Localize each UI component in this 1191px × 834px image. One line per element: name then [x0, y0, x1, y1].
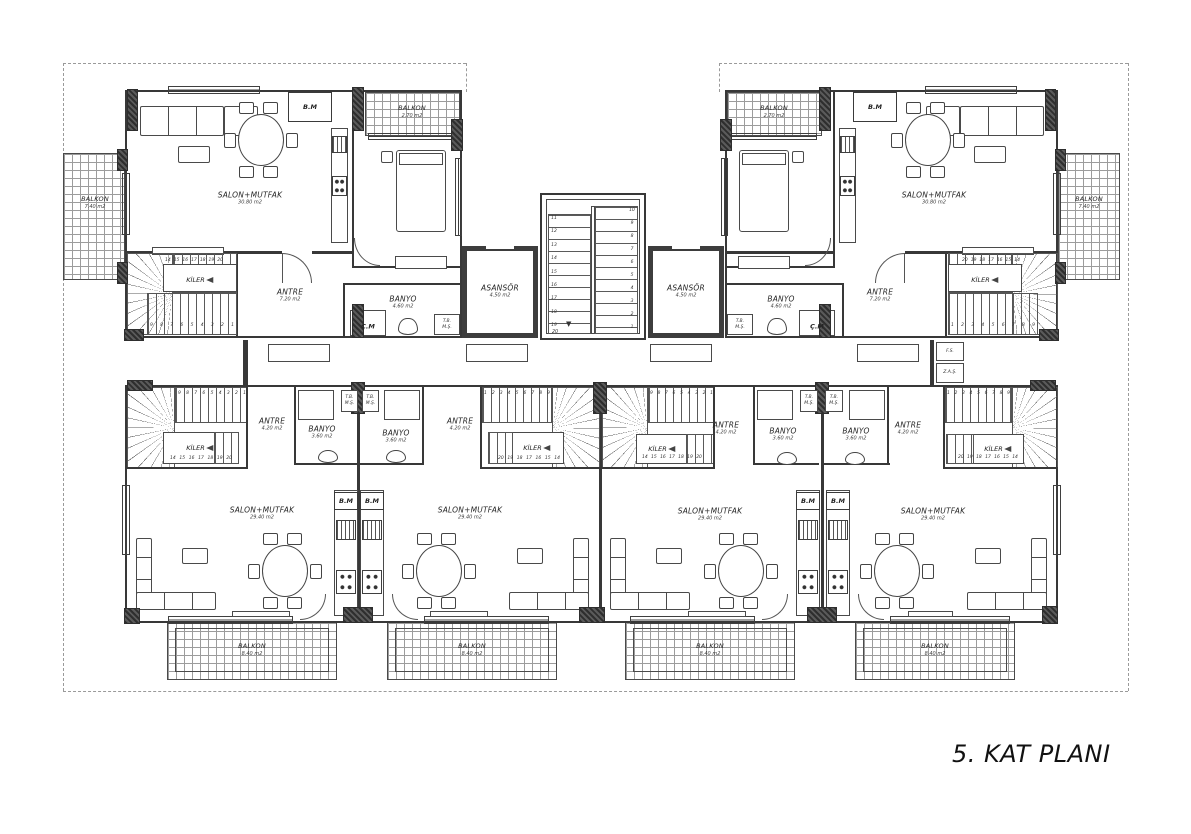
room-area: 3.60 m2 — [308, 434, 335, 440]
stair-numbers: 14151617181920 — [165, 258, 223, 263]
room-area: 30.80 m2 — [902, 200, 967, 206]
kiler-label: KİLER — [648, 445, 675, 453]
room-label-balkon: BALKON 7.40 m2 — [81, 196, 109, 210]
wall-pier — [594, 383, 606, 413]
elevator-door-gap — [486, 244, 514, 249]
room-name: ASANSÖR — [481, 284, 519, 293]
kiler-label: KİLER — [971, 276, 998, 284]
stair-number-last: 20 — [552, 330, 558, 335]
window — [168, 86, 260, 94]
boundary-dashed-top-left — [63, 63, 466, 64]
room-name: BALKON — [921, 643, 949, 651]
room-name: ANTRE — [259, 417, 285, 426]
chair — [875, 597, 890, 609]
sink — [845, 452, 865, 465]
balcony-hatch — [63, 153, 125, 280]
stair-step-number: 17 — [191, 258, 197, 263]
sofa — [136, 592, 216, 610]
stair-step-number: 5 — [977, 391, 980, 396]
room-name: BALKON — [238, 643, 266, 651]
fridge — [798, 520, 818, 540]
dining-table-group — [400, 531, 476, 609]
shaft-box: T.B.M.Ş. — [800, 390, 818, 412]
stair-step-number: 14 — [550, 256, 558, 261]
room-label-salon: SALON+MUTFAK 30.80 m2 — [902, 191, 967, 206]
room-area: 3.60 m2 — [842, 436, 869, 442]
stair-step-number: 18 — [979, 258, 985, 263]
stair-wall — [480, 467, 600, 469]
room-area: 29.40 m2 — [678, 516, 743, 522]
stair-step-number: 6 — [202, 391, 205, 396]
room-area: 8.40 m2 — [696, 651, 724, 657]
stair-step-number: 17 — [985, 455, 991, 460]
kiler-text: KİLER — [971, 276, 989, 284]
stair-step-number: 5 — [628, 273, 636, 278]
stair-step-number: 18 — [517, 456, 523, 461]
stair-numbers: 14151617181920 — [642, 455, 702, 460]
stair-numbers: 987654321 — [650, 391, 713, 396]
stair-numbers: 987654321 — [178, 391, 246, 396]
room-label-balkon: BALKON 8.40 m2 — [458, 643, 486, 657]
sofa — [967, 592, 1047, 610]
stair-step-number: 1 — [951, 323, 954, 328]
room-area: 8.40 m2 — [921, 651, 949, 657]
chair — [743, 597, 758, 609]
shaft-box: T.B.M.Ş. — [434, 314, 460, 335]
stair-step-number: 9 — [1032, 323, 1035, 328]
chair — [766, 564, 778, 579]
chair — [224, 133, 236, 148]
room-name: BALKON — [458, 643, 486, 651]
stair-step-number: 4 — [628, 286, 636, 291]
stair-step-number: 14 — [1012, 455, 1018, 460]
wardrobe — [395, 256, 447, 269]
stair-step-number: 5 — [211, 391, 214, 396]
stair-step-number: 20 — [962, 258, 968, 263]
closet-bm-label: B.M — [801, 497, 815, 505]
chair — [930, 102, 945, 114]
shower — [757, 390, 793, 420]
tv-console — [430, 611, 488, 617]
room-label-salon: SALON+MUTFAK 29.40 m2 — [230, 506, 295, 521]
sink — [386, 450, 406, 463]
room-label-banyo: BANYO 3.60 m2 — [769, 427, 796, 442]
stair-step-number: 8 — [186, 391, 189, 396]
stair-step-number: 14 — [165, 258, 171, 263]
boundary-dashed-notch-left — [466, 63, 467, 92]
stair-step-number: 14 — [554, 456, 560, 461]
room-area: 7.40 m2 — [81, 204, 109, 210]
link-wall — [243, 340, 248, 385]
window — [168, 616, 293, 624]
stair-step-number: 5 — [680, 391, 683, 396]
stair-step-number: 9 — [547, 391, 550, 396]
room-area: 3.60 m2 — [382, 438, 409, 444]
tv-console — [688, 611, 746, 617]
room-name: SALON+MUTFAK — [902, 191, 967, 200]
room-name: SALON+MUTFAK — [901, 507, 966, 516]
room-name: ANTRE — [867, 288, 893, 297]
stair-step-number: 1 — [484, 391, 487, 396]
stair-step-number: 3 — [971, 323, 974, 328]
stair-step-number: 8 — [628, 234, 636, 239]
room-area: 3.60 m2 — [769, 436, 796, 442]
stair-numbers: 123456789 — [951, 323, 1035, 328]
stair-step-number: 17 — [526, 456, 532, 461]
stair-step-number: 3 — [211, 323, 214, 328]
link-wall — [930, 340, 934, 385]
chair — [906, 102, 921, 114]
stair-step-number: 17 — [669, 455, 675, 460]
balcony-hatch — [1058, 153, 1120, 280]
wall-pier — [128, 381, 152, 390]
bath-wall — [422, 387, 424, 465]
cm-label: Ç.M — [361, 313, 375, 332]
stair-step-number: 19 — [967, 455, 973, 460]
room-name: SALON+MUTFAK — [230, 506, 295, 515]
room-label-banyo: BANYO 3.60 m2 — [308, 425, 335, 440]
stair-step-number: 15 — [651, 455, 657, 460]
chair — [263, 102, 278, 114]
stair-step-number: 16 — [182, 258, 188, 263]
shaft-ms: M.Ş. — [442, 325, 452, 331]
stair-step-number: 2 — [955, 391, 958, 396]
wall-pier — [1056, 263, 1065, 283]
toilet — [398, 318, 418, 335]
stair-numbers: 987654321 — [150, 323, 234, 328]
stair-step-number: 16 — [189, 456, 195, 461]
stair-step-number: 9 — [628, 221, 636, 226]
stair-wall — [246, 387, 248, 469]
stair-step-number: 17 — [550, 296, 558, 301]
closet-bm-label: B.M — [303, 103, 317, 111]
stair-step-number: 18 — [200, 258, 206, 263]
bed-pillow — [742, 153, 786, 165]
shaft-ms: M.Ş. — [345, 401, 355, 407]
stair-step-number: 4 — [201, 323, 204, 328]
stair-step-number: 20 — [226, 456, 232, 461]
bedroom-wall — [833, 92, 835, 268]
wall-pier — [344, 608, 372, 622]
stair-step-number: 19 — [687, 455, 693, 460]
chair — [891, 133, 903, 148]
tv-console — [232, 611, 290, 617]
dining-table — [905, 114, 951, 166]
chair — [719, 597, 734, 609]
stair-step-number: 15 — [545, 456, 551, 461]
window — [630, 616, 755, 624]
room-area: 7.20 m2 — [867, 297, 893, 303]
chair — [953, 133, 965, 148]
stair-step-number: 15 — [550, 270, 558, 275]
room-label-asansor: ASANSÖR 4.50 m2 — [481, 284, 519, 299]
wall-pier — [721, 120, 731, 150]
wall-pier — [1031, 381, 1055, 390]
bed-pillow — [399, 153, 443, 165]
chair — [899, 597, 914, 609]
stair-step-number: 3 — [500, 391, 503, 396]
stair-step-number: 20 — [958, 455, 964, 460]
chair — [263, 166, 278, 178]
dining-table — [262, 545, 308, 597]
stair-wall — [127, 467, 248, 469]
planter-box — [650, 344, 712, 362]
stair-step-number: 19 — [971, 258, 977, 263]
room-label-banyo: BANYO 3.60 m2 — [842, 427, 869, 442]
stove — [332, 176, 347, 196]
stair-step-number: 16 — [550, 283, 558, 288]
stair-step-number: 16 — [994, 455, 1000, 460]
chair — [906, 166, 921, 178]
stair-step-number: 19 — [550, 323, 558, 328]
stair-step-number: 4 — [508, 391, 511, 396]
window — [1053, 485, 1061, 555]
room-label-salon: SALON+MUTFAK 30.80 m2 — [218, 191, 283, 206]
room-area: 2.70 m2 — [398, 113, 426, 119]
stair-step-number: 8 — [1000, 391, 1003, 396]
room-name: BANYO — [767, 295, 794, 304]
room-label-antre: ANTRE 4.20 m2 — [259, 417, 285, 432]
room-label-banyo: BANYO 4.60 m2 — [767, 295, 794, 310]
chair — [441, 597, 456, 609]
dining-table-group — [702, 531, 778, 609]
shaft-box: T.B.M.Ş. — [825, 390, 843, 412]
closet-bm-box: B.M — [334, 492, 358, 510]
bath-wall — [294, 387, 296, 465]
door-leaf — [904, 253, 905, 283]
salon-wall — [312, 251, 352, 254]
stair-step-number: 17 — [988, 258, 994, 263]
chair — [417, 533, 432, 545]
room-area: 7.40 m2 — [1075, 204, 1103, 210]
room-area: 4.20 m2 — [259, 426, 285, 432]
stair-step-number: 15 — [174, 258, 180, 263]
window — [122, 485, 130, 555]
stair-step-number: 4 — [981, 323, 984, 328]
stair-step-number: 4 — [688, 391, 691, 396]
room-name: ANTRE — [447, 417, 473, 426]
dining-table — [718, 545, 764, 597]
stair-step-number: 18 — [976, 455, 982, 460]
chair — [310, 564, 322, 579]
stair-wall — [602, 467, 715, 469]
stair-step-number: 15 — [179, 456, 185, 461]
chair — [464, 564, 476, 579]
stair-wall — [480, 387, 482, 469]
wall-pier — [1046, 90, 1055, 130]
stove — [362, 570, 382, 594]
chair — [930, 166, 945, 178]
boundary-dashed-bottom — [63, 691, 1128, 692]
stove — [336, 570, 356, 594]
stair-step-number: 6 — [673, 391, 676, 396]
room-label-antre: ANTRE 7.20 m2 — [277, 288, 303, 303]
room-area: 4.60 m2 — [389, 304, 416, 310]
stair-step-number: 6 — [180, 323, 183, 328]
wall-pier — [353, 88, 363, 130]
room-name: SALON+MUTFAK — [678, 507, 743, 516]
stair-step-number: 1 — [710, 391, 713, 396]
stair-step-number: 9 — [650, 391, 653, 396]
chair — [263, 533, 278, 545]
kiler-label: KİLER — [984, 445, 1011, 453]
planter-box — [466, 344, 528, 362]
room-area: 29.40 m2 — [901, 516, 966, 522]
bath-wall — [725, 283, 844, 285]
kiler-text: KİLER — [186, 276, 204, 284]
zas-text: Z.A.Ş. — [943, 370, 956, 376]
room-name: BALKON — [398, 105, 426, 113]
coffee-table — [517, 548, 543, 564]
stair-step-number: 8 — [539, 391, 542, 396]
wall-pier — [128, 90, 137, 130]
door-leaf — [282, 253, 283, 283]
stair-step-number: 5 — [516, 391, 519, 396]
stair-step-number: 4 — [970, 391, 973, 396]
chair — [743, 533, 758, 545]
stair-step-number: 2 — [492, 391, 495, 396]
dining-table — [874, 545, 920, 597]
chair — [263, 597, 278, 609]
room-area: 4.50 m2 — [481, 293, 519, 299]
stair-numbers-left: 111213141516171819 — [550, 216, 558, 328]
kiler-label: KİLER — [523, 444, 550, 452]
room-label-asansor: ASANSÖR 4.50 m2 — [667, 284, 705, 299]
room-name: BANYO — [389, 295, 416, 304]
stair-numbers: 20191817161514 — [958, 455, 1018, 460]
room-label-balkon: BALKON 8.40 m2 — [696, 643, 724, 657]
fridge — [840, 136, 855, 153]
stair-step-number: 14 — [1014, 258, 1020, 263]
room-label-antre: ANTRE 7.20 m2 — [867, 288, 893, 303]
boundary-dashed-notch-right — [719, 63, 720, 92]
stair-step-number: 9 — [178, 391, 181, 396]
window — [728, 133, 817, 140]
bath-wall — [294, 463, 358, 465]
room-area: 4.20 m2 — [447, 426, 473, 432]
room-name: SALON+MUTFAK — [438, 506, 503, 515]
stair-step-number: 5 — [992, 323, 995, 328]
coffee-table — [974, 146, 1006, 163]
stair-numbers: 20191817161514 — [498, 456, 560, 461]
shower — [849, 390, 885, 420]
cm-text: Ç.M — [361, 322, 375, 330]
stair-step-number: 15 — [1003, 455, 1009, 460]
stair-step-number: 2 — [703, 391, 706, 396]
chair — [248, 564, 260, 579]
room-area: 4.60 m2 — [767, 304, 794, 310]
stair-step-number: 2 — [221, 323, 224, 328]
closet-bm-box: B.M — [288, 92, 332, 122]
wardrobe — [738, 256, 790, 269]
chair — [286, 133, 298, 148]
shaft-box: T.B.M.Ş. — [362, 390, 379, 412]
bath-wall — [842, 283, 844, 338]
chair — [719, 533, 734, 545]
stair-step-number: 6 — [628, 260, 636, 265]
room-name: BANYO — [382, 429, 409, 438]
dining-table-group — [246, 531, 322, 609]
stair-step-number: 11 — [550, 216, 558, 221]
stair-step-number: 16 — [997, 258, 1003, 263]
room-name: BANYO — [769, 427, 796, 436]
bath-wall — [343, 283, 345, 338]
stair-flight — [147, 293, 237, 335]
stair-step-number: 14 — [642, 455, 648, 460]
stair-step-number: 18 — [550, 310, 558, 315]
stair-step-number: 3 — [695, 391, 698, 396]
dining-table-group — [222, 100, 298, 178]
dining-table — [238, 114, 284, 166]
kiler-text: KİLER — [984, 445, 1002, 453]
shower — [384, 390, 420, 420]
room-label-salon: SALON+MUTFAK 29.40 m2 — [438, 506, 503, 521]
window — [455, 158, 462, 236]
stair-numbers: 123456789 — [947, 391, 1010, 396]
toilet — [767, 318, 787, 335]
stair-step-number: 20 — [217, 258, 223, 263]
chair — [875, 533, 890, 545]
stair-numbers: 123456789 — [484, 391, 550, 396]
stair-step-number: 19 — [209, 258, 215, 263]
stair-step-number: 1 — [628, 325, 636, 330]
stair-flight — [948, 293, 1038, 335]
stair-step-number: 8 — [160, 323, 163, 328]
sofa — [960, 106, 1044, 136]
bath-wall — [753, 387, 755, 465]
drawing-title: 5. KAT PLANI — [952, 740, 1111, 768]
tv-console — [908, 611, 953, 617]
fridge — [362, 520, 382, 540]
shaft-ms: M.Ş. — [735, 325, 745, 331]
stair-step-number: 7 — [170, 323, 173, 328]
closet-bm-label: B.M — [365, 497, 379, 505]
fs-text: F.S. — [946, 349, 954, 355]
sofa — [140, 106, 224, 136]
boundary-dashed-right — [1128, 63, 1129, 691]
coffee-table — [182, 548, 208, 564]
shaft-box: T.B.M.Ş. — [341, 390, 358, 412]
dining-table — [416, 545, 462, 597]
chair — [441, 533, 456, 545]
room-label-balkon: BALKON 8.40 m2 — [921, 643, 949, 657]
shaft-ms: M.Ş. — [366, 401, 376, 407]
stair-step-number: 7 — [531, 391, 534, 396]
chair — [287, 597, 302, 609]
stair-step-number: 20 — [696, 455, 702, 460]
wall-pier — [820, 88, 830, 130]
closet-bm-label: B.M — [831, 497, 845, 505]
stair-wall — [945, 251, 947, 338]
stair-step-number: 7 — [194, 391, 197, 396]
room-area: 29.40 m2 — [438, 515, 503, 521]
stair-step-number: 18 — [208, 456, 214, 461]
room-label-banyo: BANYO 3.60 m2 — [382, 429, 409, 444]
shaft-ms: M.Ş. — [829, 401, 839, 407]
chair — [899, 533, 914, 545]
wall-pier — [125, 330, 143, 340]
stair-step-number: 5 — [191, 323, 194, 328]
stair-step-number: 9 — [1007, 391, 1010, 396]
planter-box — [268, 344, 330, 362]
room-area: 4.50 m2 — [667, 293, 705, 299]
stair-step-number: 19 — [217, 456, 223, 461]
window — [1053, 173, 1061, 235]
stair-step-number: 6 — [523, 391, 526, 396]
room-area: 4.20 m2 — [895, 430, 921, 436]
wall-pier — [118, 150, 127, 170]
chair — [704, 564, 716, 579]
